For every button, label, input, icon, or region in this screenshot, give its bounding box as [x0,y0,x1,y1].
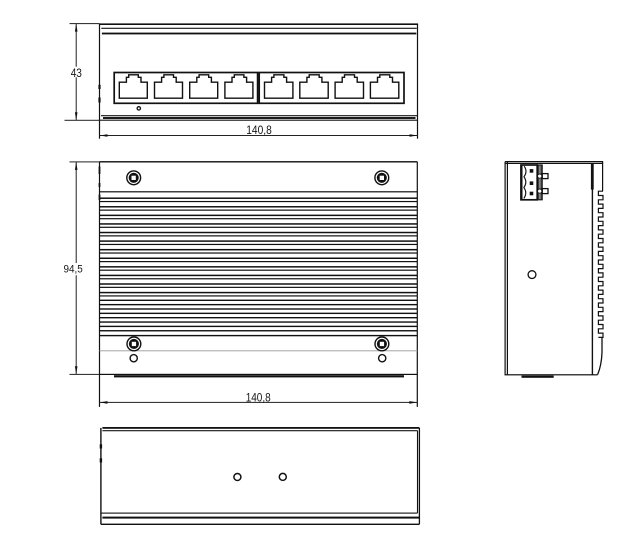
svg-text:43: 43 [71,66,83,80]
svg-text:140,8: 140,8 [246,392,271,404]
svg-text:94,5: 94,5 [64,264,83,276]
svg-text:140,8: 140,8 [246,125,272,137]
